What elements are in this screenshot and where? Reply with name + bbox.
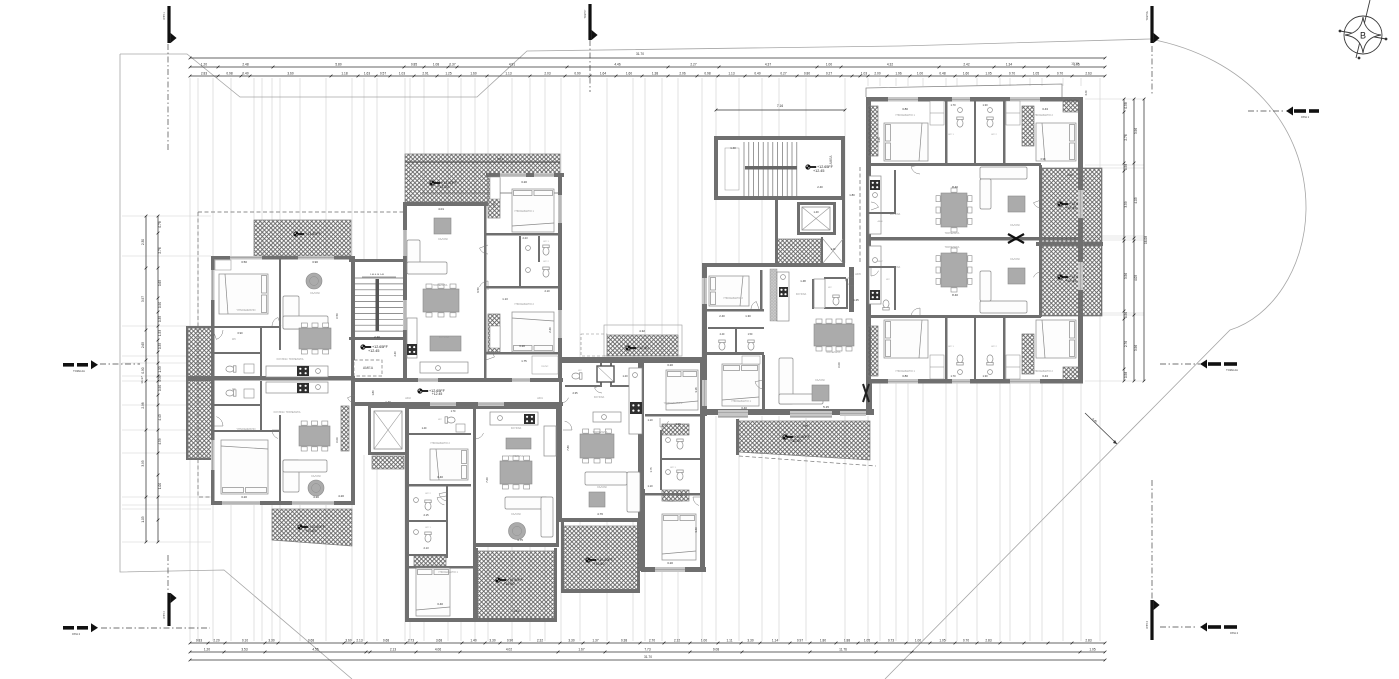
svg-text:ΤΟΜΗ ΑΑ: ΤΟΜΗ ΑΑ — [73, 369, 85, 373]
svg-text:ΑΜΕΑ: ΑΜΕΑ — [829, 155, 833, 165]
svg-text:WC: WC — [438, 419, 442, 421]
svg-text:7.25: 7.25 — [802, 424, 808, 428]
svg-text:ΚΟΥΖΙΝΑ / ΤΡΑΠΕΖΑΡΙΑ: ΚΟΥΖΙΝΑ / ΤΡΑΠΕΖΑΡΙΑ — [274, 411, 301, 414]
svg-text:3.66: 3.66 — [1067, 173, 1073, 177]
svg-text:+10.60: +10.60 — [503, 582, 514, 586]
svg-text:0.90: 0.90 — [237, 331, 243, 335]
svg-text:0.68: 0.68 — [308, 638, 314, 642]
svg-text:0.70: 0.70 — [1057, 71, 1063, 75]
svg-text:1.05: 1.05 — [939, 638, 945, 642]
svg-text:12.10: 12.10 — [1071, 62, 1079, 66]
svg-text:ΥΠΝΟΔΩΜΑΤΙΟ 1: ΥΠΝΟΔΩΜΑΤΙΟ 1 — [731, 400, 751, 403]
svg-text:4.76: 4.76 — [597, 512, 603, 516]
svg-text:ΥΠΝΟΔΩΜΑΤΙΟ 2: ΥΠΝΟΔΩΜΑΤΙΟ 2 — [514, 303, 534, 306]
svg-text:1.53: 1.53 — [158, 330, 162, 336]
svg-text:WC: WC — [232, 338, 236, 341]
svg-text:1.00: 1.00 — [917, 71, 923, 75]
svg-text:1.37: 1.37 — [592, 638, 598, 642]
svg-text:ΥΠΝΟΔΩΜΑΤΙΟ 1: ΥΠΝΟΔΩΜΑΤΙΟ 1 — [514, 210, 534, 213]
svg-text:1.30: 1.30 — [982, 374, 988, 378]
svg-text:ΚΟΥΖΙΝΑ / ΤΡΑΠΕΖΑΡΙΑ: ΚΟΥΖΙΝΑ / ΤΡΑΠΕΖΑΡΙΑ — [277, 358, 304, 361]
svg-text:3.40: 3.40 — [437, 475, 443, 479]
svg-text:0.70: 0.70 — [1009, 71, 1015, 75]
svg-text:3.96: 3.96 — [1134, 345, 1138, 351]
svg-text:2.03: 2.03 — [544, 71, 550, 75]
svg-text:1.33: 1.33 — [158, 366, 162, 372]
svg-text:+12.45: +12.45 — [1065, 279, 1076, 283]
svg-text:3.50: 3.50 — [241, 260, 247, 264]
svg-text:1.40: 1.40 — [831, 248, 836, 251]
svg-text:ΣΑΛΟΝΙ: ΣΑΛΟΝΙ — [1010, 223, 1020, 227]
svg-text:+12.40: +12.40 — [637, 346, 648, 350]
svg-text:3.30: 3.30 — [489, 638, 495, 642]
svg-text:ΣΑΛΟΝΙ: ΣΑΛΟΝΙ — [815, 378, 825, 382]
svg-text:1.08: 1.08 — [433, 62, 439, 66]
svg-text:3.40: 3.40 — [437, 602, 443, 606]
svg-text:6.50: 6.50 — [335, 313, 339, 319]
svg-text:0.90: 0.90 — [141, 367, 145, 373]
svg-text:3.60: 3.60 — [345, 638, 351, 642]
svg-text:1.64: 1.64 — [600, 71, 606, 75]
svg-text:7.80: 7.80 — [566, 445, 570, 451]
svg-text:+13.40FF: +13.40FF — [305, 232, 322, 236]
svg-text:2.98: 2.98 — [141, 402, 145, 408]
svg-text:+12.45: +12.45 — [813, 169, 824, 173]
svg-text:3.53: 3.53 — [241, 647, 247, 651]
svg-text:16.08: 16.08 — [1144, 236, 1148, 244]
svg-text:1.25: 1.25 — [853, 298, 859, 302]
svg-text:2.40: 2.40 — [817, 185, 823, 189]
svg-text:0.27: 0.27 — [780, 71, 786, 75]
svg-text:2.27: 2.27 — [690, 62, 696, 66]
svg-text:ΟΨΗ 1: ΟΨΗ 1 — [163, 12, 166, 20]
svg-text:4.06: 4.06 — [435, 647, 441, 651]
svg-text:3.80: 3.80 — [902, 107, 908, 111]
svg-text:ΣΑΛΟΝΙ: ΣΑΛΟΝΙ — [1010, 257, 1020, 261]
svg-text:3.60: 3.60 — [287, 71, 293, 75]
svg-text:4.34: 4.34 — [513, 609, 519, 613]
svg-text:1.75: 1.75 — [521, 359, 527, 363]
svg-text:0.68: 0.68 — [383, 638, 389, 642]
svg-text:0.97: 0.97 — [797, 638, 803, 642]
svg-text:1.13: 1.13 — [505, 71, 511, 75]
svg-text:1.80: 1.80 — [371, 390, 375, 396]
svg-text:1.00: 1.00 — [701, 638, 707, 642]
svg-text:1.11: 1.11 — [727, 638, 733, 642]
svg-text:ΥΠΝΟΔΩΜΑΤΙΟ 2: ΥΠΝΟΔΩΜΑΤΙΟ 2 — [723, 297, 743, 300]
svg-text:9.08: 9.08 — [713, 647, 719, 651]
svg-text:8.40: 8.40 — [952, 185, 958, 189]
svg-text:WC 2: WC 2 — [670, 435, 676, 437]
svg-text:1.40: 1.40 — [422, 427, 427, 430]
svg-text:1.50: 1.50 — [748, 333, 753, 336]
svg-text:ΥΠΝΟΔΩΜΑΤΙΟ 2: ΥΠΝΟΔΩΜΑΤΙΟ 2 — [1033, 370, 1053, 373]
svg-text:0.37: 0.37 — [449, 62, 455, 66]
svg-text:7.60: 7.60 — [485, 477, 489, 483]
svg-text:1.25: 1.25 — [445, 71, 451, 75]
svg-text:3.68: 3.68 — [436, 638, 442, 642]
svg-text:2.48: 2.48 — [242, 62, 248, 66]
svg-text:ΥΠΝΟΔΩΜΑΤΙΟ 1: ΥΠΝΟΔΩΜΑΤΙΟ 1 — [664, 500, 684, 503]
svg-text:WC 2: WC 2 — [991, 134, 997, 136]
svg-text:0.90: 0.90 — [574, 71, 580, 75]
svg-text:3.93: 3.93 — [141, 460, 145, 466]
svg-text:0.40: 0.40 — [1085, 90, 1088, 95]
svg-text:Β: Β — [1360, 31, 1366, 41]
svg-text:+12.45: +12.45 — [368, 349, 379, 353]
svg-text:2.83: 2.83 — [201, 71, 207, 75]
svg-text:WC 1: WC 1 — [543, 241, 549, 243]
svg-text:3.96: 3.96 — [1134, 128, 1138, 134]
svg-text:4.99: 4.99 — [158, 438, 162, 444]
svg-text:3.26: 3.26 — [877, 137, 881, 143]
svg-text:ΤΟΜΗ ΑΑ: ΤΟΜΗ ΑΑ — [1226, 368, 1238, 372]
svg-text:0.38: 0.38 — [621, 638, 627, 642]
svg-text:0.80: 0.80 — [804, 71, 810, 75]
svg-text:1.03: 1.03 — [861, 71, 867, 75]
svg-text:Δ306: Δ306 — [877, 220, 883, 223]
svg-text:1.75: 1.75 — [649, 467, 653, 473]
svg-text:Δ307: Δ307 — [877, 260, 883, 263]
svg-text:3.30: 3.30 — [268, 638, 274, 642]
svg-text:WC 2: WC 2 — [425, 493, 431, 495]
svg-text:2.91: 2.91 — [422, 71, 428, 75]
svg-text:ΚΟΥΖΙΝΑ: ΚΟΥΖΙΝΑ — [796, 293, 807, 296]
svg-text:AMEA: AMEA — [363, 366, 374, 370]
svg-text:0.78: 0.78 — [158, 221, 162, 227]
svg-text:31.70: 31.70 — [636, 52, 644, 56]
svg-text:2.12: 2.12 — [674, 638, 680, 642]
svg-text:4.55: 4.55 — [312, 647, 318, 651]
svg-text:5.15: 5.15 — [823, 405, 829, 409]
svg-text:2.00: 2.00 — [874, 71, 880, 75]
svg-text:4.37: 4.37 — [765, 62, 771, 66]
svg-text:1.80: 1.80 — [849, 193, 855, 197]
svg-text:1.38: 1.38 — [652, 71, 658, 75]
svg-text:2.10: 2.10 — [544, 289, 550, 293]
svg-text:WC: WC — [232, 388, 236, 391]
svg-text:Δ301: Δ301 — [537, 397, 543, 400]
svg-text:2.76: 2.76 — [1124, 341, 1128, 347]
svg-text:2.30: 2.30 — [374, 335, 380, 339]
svg-text:0.35: 0.35 — [158, 375, 162, 381]
svg-text:+10.60: +10.60 — [593, 562, 604, 566]
svg-text:0.57: 0.57 — [380, 71, 386, 75]
svg-text:2.65: 2.65 — [141, 342, 145, 348]
svg-text:1.03: 1.03 — [141, 516, 145, 522]
svg-text:3.20: 3.20 — [667, 363, 673, 367]
svg-text:8.51: 8.51 — [497, 157, 503, 161]
svg-text:ΟΨΗ 2: ΟΨΗ 2 — [1230, 631, 1239, 635]
svg-text:4.01: 4.01 — [438, 207, 444, 211]
svg-text:1.30: 1.30 — [745, 314, 751, 318]
svg-text:ΥΠΝΟΔΩΜΑΤΙΟ 2: ΥΠΝΟΔΩΜΑΤΙΟ 2 — [1033, 114, 1053, 117]
svg-text:3.16: 3.16 — [694, 387, 698, 393]
svg-text:WC: WC — [578, 370, 582, 372]
svg-text:2.76: 2.76 — [1124, 134, 1128, 140]
svg-text:3.30: 3.30 — [747, 638, 753, 642]
svg-text:1.96: 1.96 — [895, 71, 901, 75]
svg-text:WC 1: WC 1 — [425, 527, 431, 529]
svg-text:ΤΡΑΠΕΖΑΡΙΑ: ΤΡΑΠΕΖΑΡΙΑ — [945, 246, 960, 249]
svg-text:ΚΟΥΖΙΝΑ: ΚΟΥΖΙΝΑ — [594, 396, 605, 399]
svg-text:3.97: 3.97 — [141, 296, 145, 302]
svg-text:ΤΡΑΠΕΖΑΡΙΑ: ΤΡΑΠΕΖΑΡΙΑ — [945, 232, 960, 235]
svg-text:1.03: 1.03 — [399, 71, 405, 75]
svg-text:2.23: 2.23 — [522, 236, 528, 240]
svg-text:4.46: 4.46 — [614, 62, 620, 66]
svg-text:0.98: 0.98 — [704, 71, 710, 75]
svg-text:0.85: 0.85 — [411, 62, 417, 66]
svg-text:2.40: 2.40 — [393, 351, 397, 357]
svg-text:3.59: 3.59 — [1124, 201, 1128, 207]
svg-text:ΤΡΑΠΕΖΑΡΙΑ: ΤΡΑΠΕΖΑΡΙΑ — [509, 455, 524, 458]
svg-text:2.13: 2.13 — [390, 647, 396, 651]
svg-text:ΣΑΛΟΝΙ: ΣΑΛΟΝΙ — [511, 512, 521, 516]
svg-text:ΥΠΝΟΔΩΜΑΤΙΟ: ΥΠΝΟΔΩΜΑΤΙΟ — [236, 427, 255, 431]
svg-text:WC: WC — [828, 287, 832, 289]
svg-text:1.05: 1.05 — [1089, 647, 1095, 651]
svg-text:11.76: 11.76 — [839, 647, 847, 651]
svg-text:ΚΟΥΖΙΝΑ: ΚΟΥΖΙΝΑ — [511, 427, 522, 430]
svg-text:0.10: 0.10 — [242, 638, 248, 642]
svg-text:1.34: 1.34 — [1006, 62, 1012, 66]
svg-text:ΥΠΝΟΔΩΜΑΤΙΟ: ΥΠΝΟΔΩΜΑΤΙΟ — [236, 308, 255, 312]
svg-text:3.20: 3.20 — [667, 561, 673, 565]
svg-text:+10.60: +10.60 — [305, 529, 316, 533]
svg-text:2.63: 2.63 — [1085, 71, 1091, 75]
svg-text:0.70: 0.70 — [963, 638, 969, 642]
svg-text:1.63: 1.63 — [364, 71, 370, 75]
svg-text:2.83: 2.83 — [985, 638, 991, 642]
svg-text:+12.45: +12.45 — [432, 392, 443, 396]
svg-text:3.56: 3.56 — [1124, 273, 1128, 279]
svg-text:0.35: 0.35 — [158, 343, 162, 349]
svg-text:2.15: 2.15 — [423, 513, 429, 517]
svg-text:1.67: 1.67 — [578, 647, 584, 651]
svg-text:6.00: 6.00 — [837, 362, 841, 368]
svg-text:2.40: 2.40 — [548, 327, 552, 333]
svg-text:1.18: 1.18 — [341, 71, 347, 75]
svg-text:6.06: 6.06 — [335, 437, 339, 443]
svg-text:ΤΟΜΗ Δ: ΤΟΜΗ Δ — [1146, 11, 1149, 21]
svg-text:2.40: 2.40 — [720, 333, 725, 336]
svg-text:ΥΠΝΟΔΩΜΑΤΙΟ 2: ΥΠΝΟΔΩΜΑΤΙΟ 2 — [664, 402, 684, 405]
svg-text:ΟΨΗ 1: ΟΨΗ 1 — [1301, 115, 1310, 119]
svg-text:WC 2: WC 2 — [543, 261, 549, 263]
svg-text:1.10: 1.10 — [647, 418, 653, 422]
svg-text:2.32: 2.32 — [537, 638, 543, 642]
svg-text:1.70: 1.70 — [451, 410, 456, 413]
svg-text:1.88: 1.88 — [844, 638, 850, 642]
svg-text:Δ302: Δ302 — [405, 397, 411, 400]
svg-text:0.98: 0.98 — [1041, 158, 1046, 161]
svg-text:ΣΑΛΟΝΙ: ΣΑΛΟΝΙ — [438, 237, 448, 241]
svg-text:4.43: 4.43 — [158, 414, 162, 420]
svg-text:1.13: 1.13 — [728, 71, 734, 75]
svg-text:5.80: 5.80 — [335, 62, 341, 66]
svg-text:1.70: 1.70 — [950, 103, 956, 107]
svg-text:ΟΨΗ 4: ΟΨΗ 4 — [163, 611, 166, 619]
svg-text:ΟΨΗ 2: ΟΨΗ 2 — [72, 632, 81, 636]
svg-text:0.40: 0.40 — [754, 71, 760, 75]
svg-text:4.20: 4.20 — [313, 495, 319, 499]
svg-text:1.70: 1.70 — [950, 374, 956, 378]
svg-text:ΣΑΛΟΝΙ: ΣΑΛΟΝΙ — [311, 474, 321, 478]
svg-text:WC: WC — [886, 279, 890, 281]
svg-text:ΤΡΑΠΕΖΑΡΙΑ: ΤΡΑΠΕΖΑΡΙΑ — [593, 431, 608, 434]
svg-text:3.43: 3.43 — [1042, 374, 1048, 378]
svg-text:ΣΑΛΟΝΙ: ΣΑΛΟΝΙ — [597, 485, 607, 489]
svg-text:1.00: 1.00 — [915, 638, 921, 642]
svg-text:2.13: 2.13 — [423, 546, 429, 550]
svg-text:2.30: 2.30 — [874, 293, 877, 298]
svg-text:3.80: 3.80 — [902, 374, 908, 378]
svg-text:0.90: 0.90 — [507, 638, 513, 642]
svg-text:Δ305: Δ305 — [855, 273, 861, 276]
svg-text:0.90: 0.90 — [158, 302, 162, 308]
svg-text:ΚΟΥΖΙΝΑ: ΚΟΥΖΙΝΑ — [439, 336, 450, 339]
svg-text:1.48: 1.48 — [800, 279, 806, 283]
svg-text:0.73: 0.73 — [888, 638, 894, 642]
svg-text:0.27: 0.27 — [826, 71, 832, 75]
svg-text:2.20: 2.20 — [213, 638, 219, 642]
svg-text:1.14: 1.14 — [772, 638, 778, 642]
svg-text:0.40: 0.40 — [242, 71, 248, 75]
svg-text:ΤΟΜΗ Γ: ΤΟΜΗ Γ — [584, 9, 587, 19]
svg-text:1.40: 1.40 — [730, 146, 736, 150]
svg-text:1.60: 1.60 — [626, 71, 632, 75]
svg-text:1.00: 1.00 — [158, 483, 162, 489]
svg-text:1.10: 1.10 — [647, 484, 653, 488]
svg-text:1.05: 1.05 — [864, 638, 870, 642]
svg-text:14.37: 14.37 — [140, 376, 144, 384]
svg-text:1.80: 1.80 — [820, 638, 826, 642]
svg-text:4.20: 4.20 — [338, 494, 344, 498]
svg-text:1.20: 1.20 — [201, 62, 207, 66]
svg-text:2.30: 2.30 — [141, 239, 145, 245]
svg-text:WC 2: WC 2 — [991, 346, 997, 348]
svg-text:0.56: 0.56 — [1124, 312, 1128, 318]
svg-text:ΟΨΗ 3: ΟΨΗ 3 — [1146, 621, 1149, 629]
svg-text:3.43: 3.43 — [694, 527, 698, 533]
svg-text:2.06: 2.06 — [679, 71, 685, 75]
svg-text:ΥΠΝΟΔΩΜΑΤΙΟ 1: ΥΠΝΟΔΩΜΑΤΙΟ 1 — [895, 114, 915, 117]
svg-text:WC 1: WC 1 — [948, 346, 954, 348]
svg-text:9.50: 9.50 — [476, 287, 480, 293]
svg-text:1.40: 1.40 — [470, 638, 476, 642]
svg-text:ΠΛΥΝΤ.: ΠΛΥΝΤ. — [541, 366, 549, 368]
svg-text:2.73: 2.73 — [408, 638, 414, 642]
svg-text:3.20: 3.20 — [241, 495, 247, 499]
svg-text:2.42: 2.42 — [963, 62, 969, 66]
svg-text:0.58: 0.58 — [1124, 102, 1128, 108]
svg-text:ΥΠΝΟΔΩΜΑΤΙΟ 1: ΥΠΝΟΔΩΜΑΤΙΟ 1 — [438, 571, 458, 574]
svg-text:31.70: 31.70 — [644, 655, 652, 659]
svg-text:2.13: 2.13 — [356, 638, 362, 642]
svg-text:1.20: 1.20 — [622, 374, 628, 378]
svg-text:4.05: 4.05 — [1134, 275, 1138, 281]
svg-text:ΤΡΑΠΕΖΑΡΙΑ: ΤΡΑΠΕΖΑΡΙΑ — [433, 284, 448, 287]
svg-text:3.40: 3.40 — [741, 406, 747, 410]
svg-text:7.73: 7.73 — [644, 647, 650, 651]
svg-text:+10.60: +10.60 — [790, 439, 801, 443]
svg-text:0.90: 0.90 — [158, 385, 162, 391]
svg-text:0.58: 0.58 — [1124, 372, 1128, 378]
svg-text:0.58: 0.58 — [1124, 164, 1128, 170]
svg-text:1.60: 1.60 — [963, 71, 969, 75]
svg-text:ΥΠΝΟΔΩΜΑΤΙΟ 1: ΥΠΝΟΔΩΜΑΤΙΟ 1 — [895, 370, 915, 373]
svg-text:1.40 0.10 1.40: 1.40 0.10 1.40 — [370, 274, 385, 276]
svg-text:0.65: 0.65 — [158, 280, 162, 286]
svg-text:ΥΠΝΟΔΩΜΑΤΙΟ 2: ΥΠΝΟΔΩΜΑΤΙΟ 2 — [430, 442, 450, 445]
svg-text:3.43: 3.43 — [1042, 107, 1048, 111]
svg-text:4.32: 4.32 — [639, 329, 645, 333]
svg-text:+12.45: +12.45 — [1065, 206, 1076, 210]
svg-text:4.05: 4.05 — [1134, 197, 1138, 203]
svg-text:+13.20: +13.20 — [437, 185, 448, 189]
svg-text:ΤΡΑΠΕΖΑΡΙΑ: ΤΡΑΠΕΖΑΡΙΑ — [826, 351, 841, 354]
svg-text:8.40: 8.40 — [952, 293, 958, 297]
svg-text:4.75: 4.75 — [517, 538, 523, 542]
svg-text:0.83: 0.83 — [196, 638, 202, 642]
svg-text:1.20: 1.20 — [204, 647, 210, 651]
svg-text:2.76: 2.76 — [158, 247, 162, 253]
svg-text:4.02: 4.02 — [506, 647, 512, 651]
svg-text:1.60: 1.60 — [470, 71, 476, 75]
svg-text:7.16: 7.16 — [777, 104, 783, 108]
svg-text:WC 1: WC 1 — [948, 134, 954, 136]
svg-text:1.40: 1.40 — [813, 210, 819, 214]
svg-text:ΣΑΛΟΝΙ: ΣΑΛΟΝΙ — [310, 291, 320, 295]
svg-text:1.00: 1.00 — [826, 62, 832, 66]
svg-text:0.98: 0.98 — [226, 71, 232, 75]
svg-text:4.91: 4.91 — [509, 62, 515, 66]
svg-text:0.35: 0.35 — [158, 316, 162, 322]
svg-text:2.40: 2.40 — [719, 314, 725, 318]
svg-text:0.48: 0.48 — [939, 71, 945, 75]
svg-text:2.83: 2.83 — [1085, 638, 1091, 642]
svg-text:2.70: 2.70 — [649, 638, 655, 642]
svg-text:3.20: 3.20 — [521, 180, 527, 184]
svg-text:4.32: 4.32 — [887, 62, 893, 66]
svg-text:3.20: 3.20 — [519, 344, 525, 348]
svg-text:1.13: 1.13 — [502, 297, 508, 301]
svg-text:1.05: 1.05 — [985, 71, 991, 75]
svg-text:1.05: 1.05 — [1033, 71, 1039, 75]
svg-text:2.35: 2.35 — [572, 391, 578, 395]
svg-text:2.00: 2.00 — [675, 422, 681, 426]
svg-text:3.90: 3.90 — [312, 260, 318, 264]
svg-text:3.30: 3.30 — [568, 638, 574, 642]
svg-text:1.30: 1.30 — [982, 103, 988, 107]
svg-text:WC 1: WC 1 — [670, 467, 676, 469]
